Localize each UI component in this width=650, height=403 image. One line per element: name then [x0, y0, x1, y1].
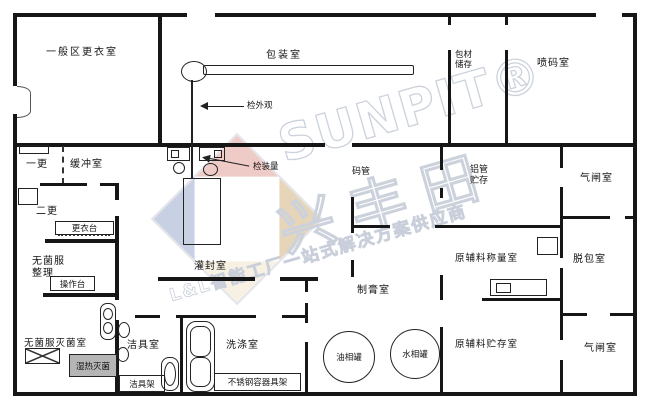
wall	[440, 188, 443, 198]
room-label-inkjet-coding: 喷码室	[537, 54, 570, 69]
wall	[180, 317, 183, 392]
room-label-tube-arranging: 码管	[352, 164, 370, 177]
inspect-appearance-label: 检外观	[247, 99, 273, 111]
wall	[448, 13, 451, 25]
wall	[305, 342, 308, 392]
wall	[440, 275, 443, 300]
room-label-cleaning-tools: 洁具室	[127, 336, 160, 351]
room-label-paste-making: 制膏室	[357, 281, 390, 296]
inspect-fill-label: 检装量	[253, 160, 279, 172]
inspect-appearance-arrowhead	[200, 102, 208, 110]
room-label-first-changing: 一更	[26, 155, 48, 170]
room-label-depacking: 脱包室	[573, 250, 606, 265]
wall	[482, 298, 563, 301]
wall	[280, 277, 318, 281]
room-label-packaging: 包装室	[266, 46, 302, 61]
room-label-sterile-clothes-sterilizing: 无菌服灭菌室	[24, 335, 87, 349]
wall	[13, 114, 17, 396]
wall	[633, 13, 637, 396]
conveyor-belt	[203, 65, 414, 75]
inspect-fill-arrowhead	[201, 153, 210, 162]
wall	[115, 183, 119, 200]
gauge-circle	[203, 163, 218, 176]
wall	[45, 239, 115, 243]
wall	[352, 143, 637, 147]
water-phase-tank: 水相罐	[390, 329, 440, 379]
wall	[158, 13, 162, 143]
moist-heat-sterilizer: 湿热灭菌	[69, 354, 117, 377]
wall	[13, 392, 637, 396]
room-label-raw-material-storage: 原辅料贮存室	[455, 336, 518, 350]
filling-machine	[183, 178, 221, 245]
wall	[305, 277, 308, 292]
wall	[625, 216, 637, 219]
wall	[560, 268, 563, 340]
wall	[610, 313, 637, 316]
wall	[215, 13, 596, 17]
wall	[351, 260, 354, 277]
wall	[158, 277, 255, 281]
wall	[440, 144, 443, 170]
sink-bowl	[103, 308, 113, 320]
wall	[448, 50, 451, 143]
room-label-airlock-top: 气闸室	[580, 169, 613, 184]
oil-phase-tank: 油相罐	[323, 331, 375, 383]
wall	[43, 293, 115, 297]
sterilizer-cabinet	[25, 348, 60, 364]
wall	[505, 13, 508, 25]
sink-bowl	[103, 322, 113, 334]
sink-bowl	[164, 362, 176, 386]
room-label-second-changing: 二更	[36, 202, 58, 217]
wall	[561, 313, 587, 316]
wall	[352, 225, 390, 228]
cleaning-rack: 洁具架	[119, 375, 165, 392]
stainless-container-rack: 不锈钢容器具架	[214, 373, 301, 391]
wall	[561, 216, 610, 219]
wall	[305, 303, 308, 323]
floor-plan: SUNPIT® 兴丰田 L&L智能工厂一站式解决方案供应商	[0, 0, 650, 403]
wall	[13, 13, 17, 86]
room-label-filling-sealing: 灌封室	[194, 257, 227, 272]
wall	[560, 187, 563, 258]
room-label-general-changing: 一般区更衣室	[46, 43, 118, 58]
room-label-airlock-bottom: 气闸室	[584, 339, 617, 354]
wall	[505, 50, 508, 143]
bench	[19, 145, 49, 154]
room-label-packing-material-storage: 包材储存	[455, 50, 477, 70]
door-arc	[17, 86, 31, 118]
panel-button	[214, 150, 222, 158]
wall	[560, 360, 563, 392]
panel-button	[171, 150, 179, 158]
room-label-raw-material-weighing: 原辅料称量室	[455, 250, 518, 264]
scale	[496, 283, 511, 293]
sink-bowl	[190, 326, 211, 357]
sink-bowl	[190, 357, 211, 387]
wall	[40, 183, 87, 186]
changing-table: 更衣台	[55, 221, 114, 235]
wall	[135, 315, 160, 318]
wall	[435, 225, 561, 228]
wall	[176, 315, 256, 318]
wall	[440, 327, 443, 392]
shelf	[18, 188, 38, 205]
conveyor-drop-line	[191, 80, 193, 178]
wall	[560, 143, 563, 168]
room-label-buffer: 缓冲室	[70, 155, 103, 170]
room-label-washing: 洗涤室	[226, 336, 259, 351]
strip-curtain	[62, 146, 64, 184]
gauge-circle	[173, 162, 185, 174]
room-label-sterile-clothes-sorting: 无菌服整理	[32, 256, 68, 280]
room-label-aluminum-tube-storage: 铝管贮存	[470, 165, 492, 187]
wall	[115, 216, 119, 300]
equipment-box	[537, 237, 558, 255]
inspect-appearance-arrow-line	[208, 106, 244, 107]
